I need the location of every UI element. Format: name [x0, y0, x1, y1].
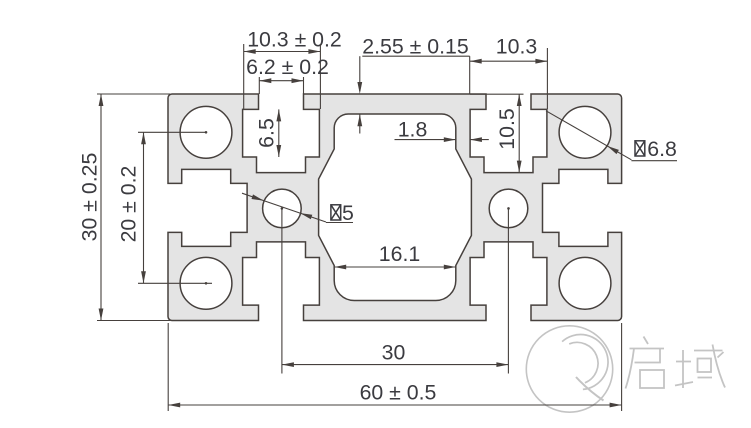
svg-text:2.55 ± 0.15: 2.55 ± 0.15: [362, 35, 468, 59]
svg-text:16.1: 16.1: [379, 242, 420, 266]
svg-text:5: 5: [342, 201, 354, 225]
svg-text:6.5: 6.5: [255, 118, 279, 148]
svg-text:6.8: 6.8: [647, 137, 677, 161]
svg-text:10.3: 10.3: [496, 35, 537, 59]
svg-text:1.8: 1.8: [398, 118, 428, 142]
svg-text:20 ± 0.2: 20 ± 0.2: [117, 166, 141, 243]
svg-text:60 ± 0.5: 60 ± 0.5: [360, 381, 437, 405]
svg-text:30: 30: [382, 341, 406, 365]
svg-text:30 ± 0.25: 30 ± 0.25: [78, 153, 102, 242]
svg-text:10.5: 10.5: [495, 108, 519, 149]
svg-text:10.3 ± 0.2: 10.3 ± 0.2: [247, 28, 342, 52]
svg-text:6.2 ± 0.2: 6.2 ± 0.2: [246, 55, 329, 79]
